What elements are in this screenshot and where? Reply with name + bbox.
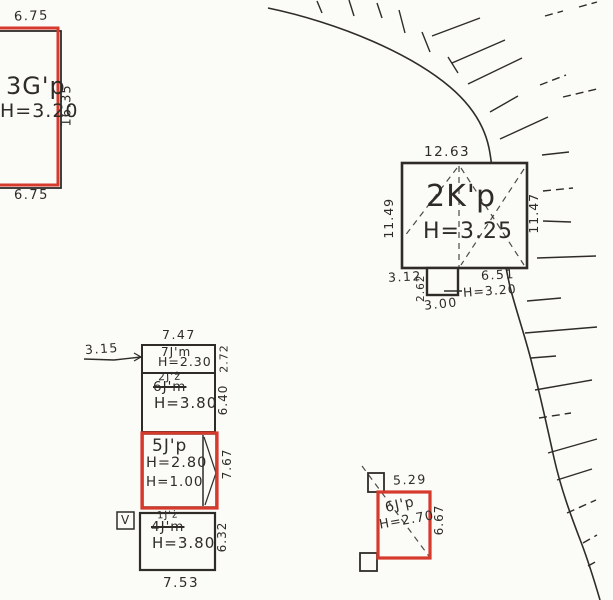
slope-hatch-line <box>540 75 566 85</box>
slope-hatch-line <box>583 535 597 543</box>
slope-hatch-line <box>525 327 597 333</box>
b6jp-dim-top: 5.29 <box>393 473 427 487</box>
slope-hatch-line <box>543 221 571 222</box>
slope-hatch-line <box>349 0 354 16</box>
b6jp-dim-right: 6.67 <box>433 497 445 543</box>
b3gp-label: 3G'p <box>6 74 66 98</box>
b3gp-dim-bottom: 6.75 <box>14 189 49 202</box>
b2kp-height: H=3.25 <box>423 221 513 243</box>
b6jm-height: H=3.80 <box>154 396 217 411</box>
slope-hatch-line <box>432 18 480 36</box>
b4jm-height: H=3.80 <box>152 536 215 551</box>
b5jp-height-2: H=1.00 <box>146 476 204 490</box>
slope-hatch-line <box>377 3 382 18</box>
b6jm-dim-right: 6.40 <box>217 377 229 423</box>
b7jm-dim-right: 2.72 <box>219 336 230 382</box>
slope-hatch-line <box>579 2 597 7</box>
slope-hatch-line <box>543 188 573 191</box>
slope-hatch-line <box>567 500 596 513</box>
slope-hatch-line <box>527 298 561 301</box>
b5jp-label: 5J'p <box>152 438 187 455</box>
slope-hatch-line <box>490 96 518 112</box>
b6jm-label-old: 6J'm <box>153 381 186 395</box>
b4jm-dim-right: 6.32 <box>216 514 228 560</box>
b4jm-label-old: 4J'm <box>151 521 184 535</box>
slope-hatch-line <box>537 256 596 258</box>
slope-hatch-line <box>422 32 430 52</box>
b6jp-square-bottom <box>360 553 377 571</box>
slope-hatch-line <box>317 1 322 13</box>
b2kp-label: 2K'p <box>426 182 496 212</box>
b2kp-dim-bottom-right: 6.51 <box>481 268 515 282</box>
slope-hatch-line <box>542 152 569 155</box>
b5jp-dim-right: 7.67 <box>221 441 233 487</box>
b7jm-dim-top: 7.47 <box>162 329 196 342</box>
slope-hatch-line <box>500 117 548 139</box>
offset-leader-arrow-a <box>134 353 141 357</box>
b3gp-dim-right: 16.35 <box>61 83 74 129</box>
offset-label: 3.15 <box>85 342 120 357</box>
b6jp-square-top <box>368 473 384 492</box>
b2kp-dim-top: 12.63 <box>424 146 470 160</box>
b3gp-dim-top: 6.75 <box>14 9 49 23</box>
plan-drawing <box>0 0 613 600</box>
slope-hatch-line <box>557 469 592 480</box>
b2kp-dim-left: 11.49 <box>383 195 396 241</box>
b2kp-dim-right: 11.47 <box>528 190 541 236</box>
b7jm-height: H=2.30 <box>158 356 212 369</box>
site-plan: 6.75 3G'p H=3.20 16.35 6.75 12.63 2K'p H… <box>0 0 613 600</box>
slope-hatch-line <box>452 40 505 63</box>
b5jp-height-1: H=2.80 <box>146 456 207 471</box>
slope-hatch-line <box>563 89 597 97</box>
slope-hatch-line <box>588 560 599 566</box>
v-marker: V <box>121 514 130 526</box>
slope-hatch-line <box>531 356 556 358</box>
slope-hatch-line <box>399 10 405 33</box>
slope-hatch-line <box>545 11 563 16</box>
offset-leader-underline <box>84 359 114 360</box>
slope-hatch-line <box>548 439 597 453</box>
slope-hatch-line <box>448 57 458 73</box>
b4jm-dim-bottom: 7.53 <box>163 577 199 591</box>
slope-hatch-line <box>468 58 522 84</box>
slope-hatch-line <box>535 380 592 390</box>
